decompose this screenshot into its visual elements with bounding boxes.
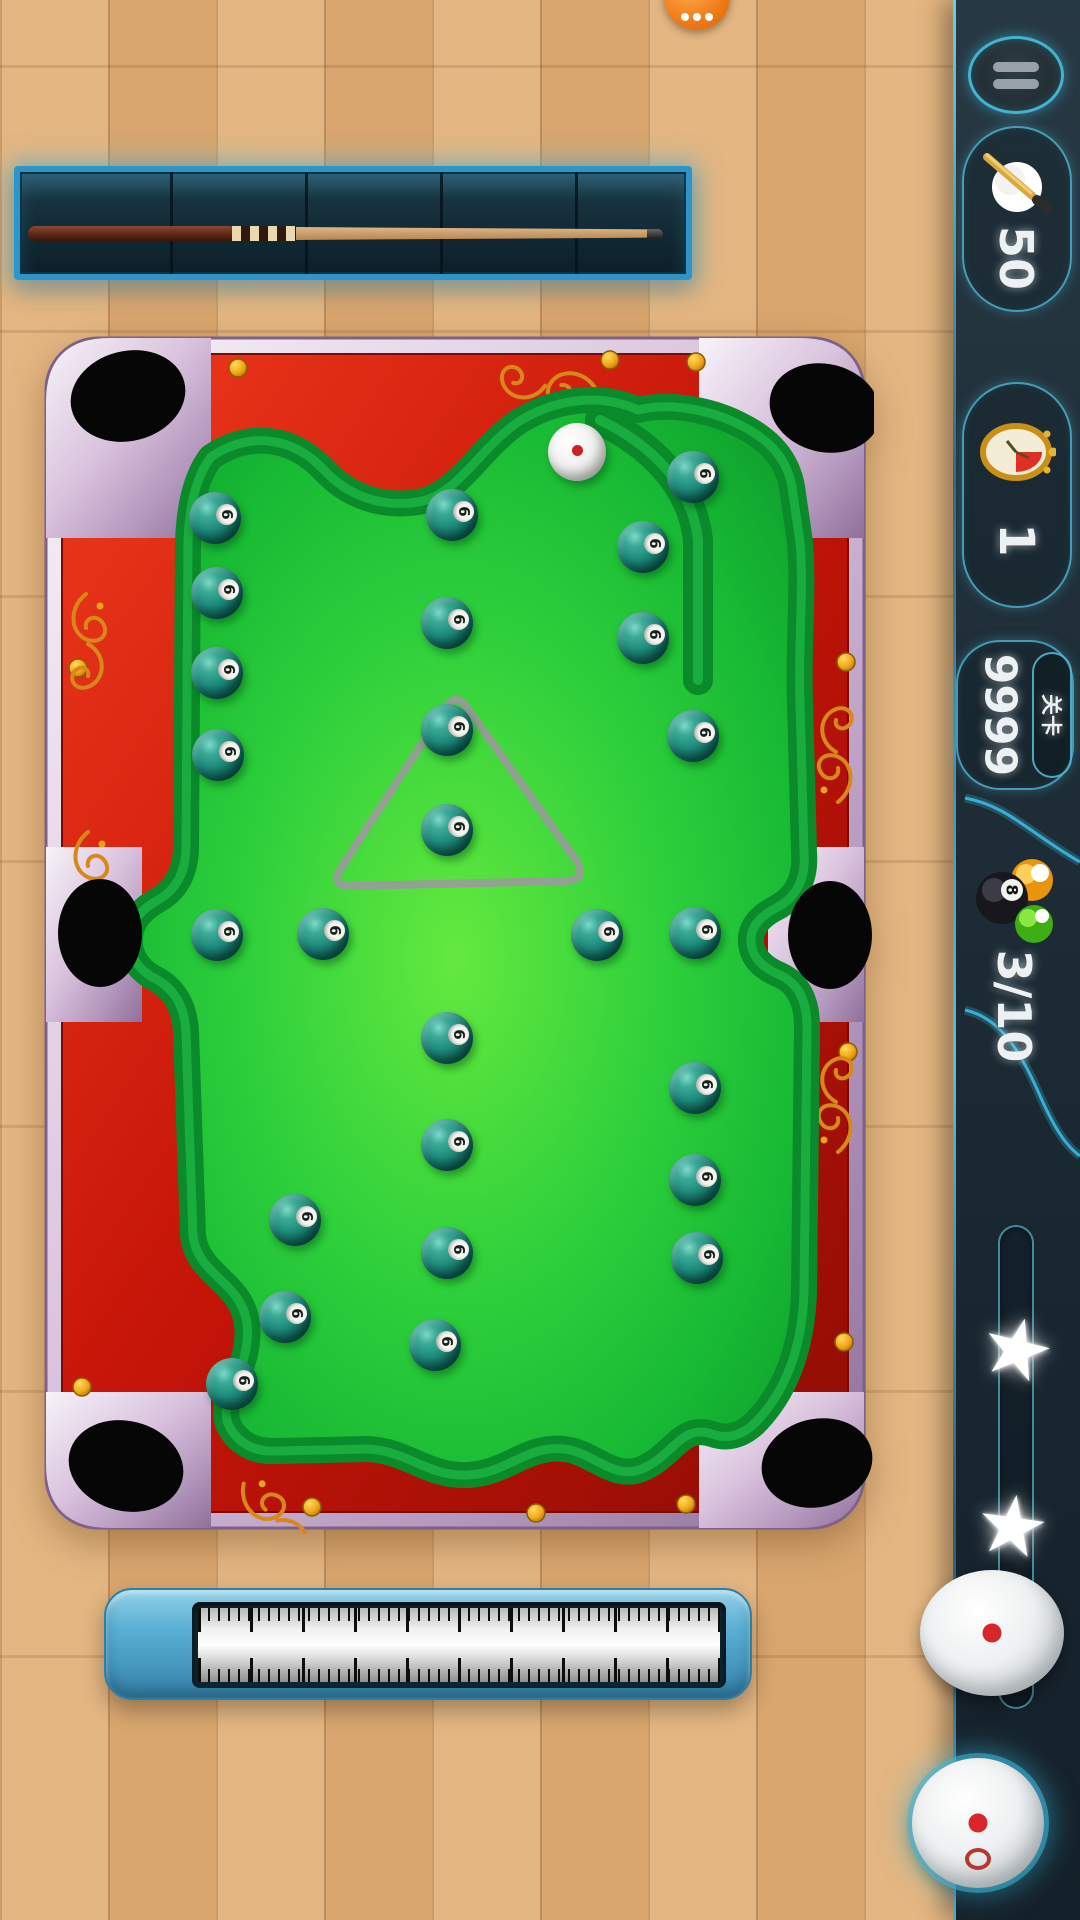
timer-value: 1 — [988, 523, 1044, 556]
level-value: 9999 — [975, 654, 1026, 776]
power-ruler[interactable] — [104, 1588, 752, 1700]
menu-button[interactable] — [968, 36, 1064, 114]
pool-table[interactable] — [36, 332, 874, 1534]
level-label: 关卡 — [1037, 694, 1067, 736]
balls-counter-icon: 8 — [966, 858, 1070, 954]
cue-coin-icon — [978, 144, 1056, 222]
cue-ball-button[interactable] — [920, 1570, 1064, 1696]
cue-rack-divider — [170, 172, 173, 274]
spin-ring-icon — [965, 1848, 991, 1870]
cue-tip-icon — [647, 229, 663, 239]
cue-rack-divider — [440, 172, 443, 274]
cue-butt — [28, 226, 232, 241]
cue-shaft — [296, 227, 648, 240]
cue-wrap-bands — [232, 226, 296, 241]
pool-table-graphic — [36, 332, 874, 1534]
ruler-ticks-top — [198, 1608, 720, 1632]
ruler-recess — [192, 1602, 726, 1688]
top-badge-icon[interactable] — [664, 0, 730, 30]
ruler-strip[interactable] — [198, 1608, 720, 1682]
hamburger-icon — [993, 62, 1039, 72]
spin-dot-icon — [969, 1814, 988, 1833]
star-icon: ★ — [970, 1481, 1054, 1572]
svg-text:8: 8 — [1003, 884, 1022, 895]
spin-dot-icon — [983, 1624, 1002, 1643]
badge-dots-icon — [664, 13, 730, 21]
cue-rack-divider — [305, 172, 308, 274]
cue-rack-divider — [575, 172, 578, 274]
cue-rack[interactable] — [14, 166, 692, 280]
cue-coin-value: 50 — [989, 226, 1043, 290]
stopwatch-icon — [976, 416, 1056, 488]
hamburger-icon — [993, 79, 1039, 89]
balls-counter-value: 3/10 — [987, 950, 1041, 1063]
spin-control-button[interactable] — [912, 1758, 1044, 1888]
ruler-ticks-bottom — [198, 1658, 720, 1682]
